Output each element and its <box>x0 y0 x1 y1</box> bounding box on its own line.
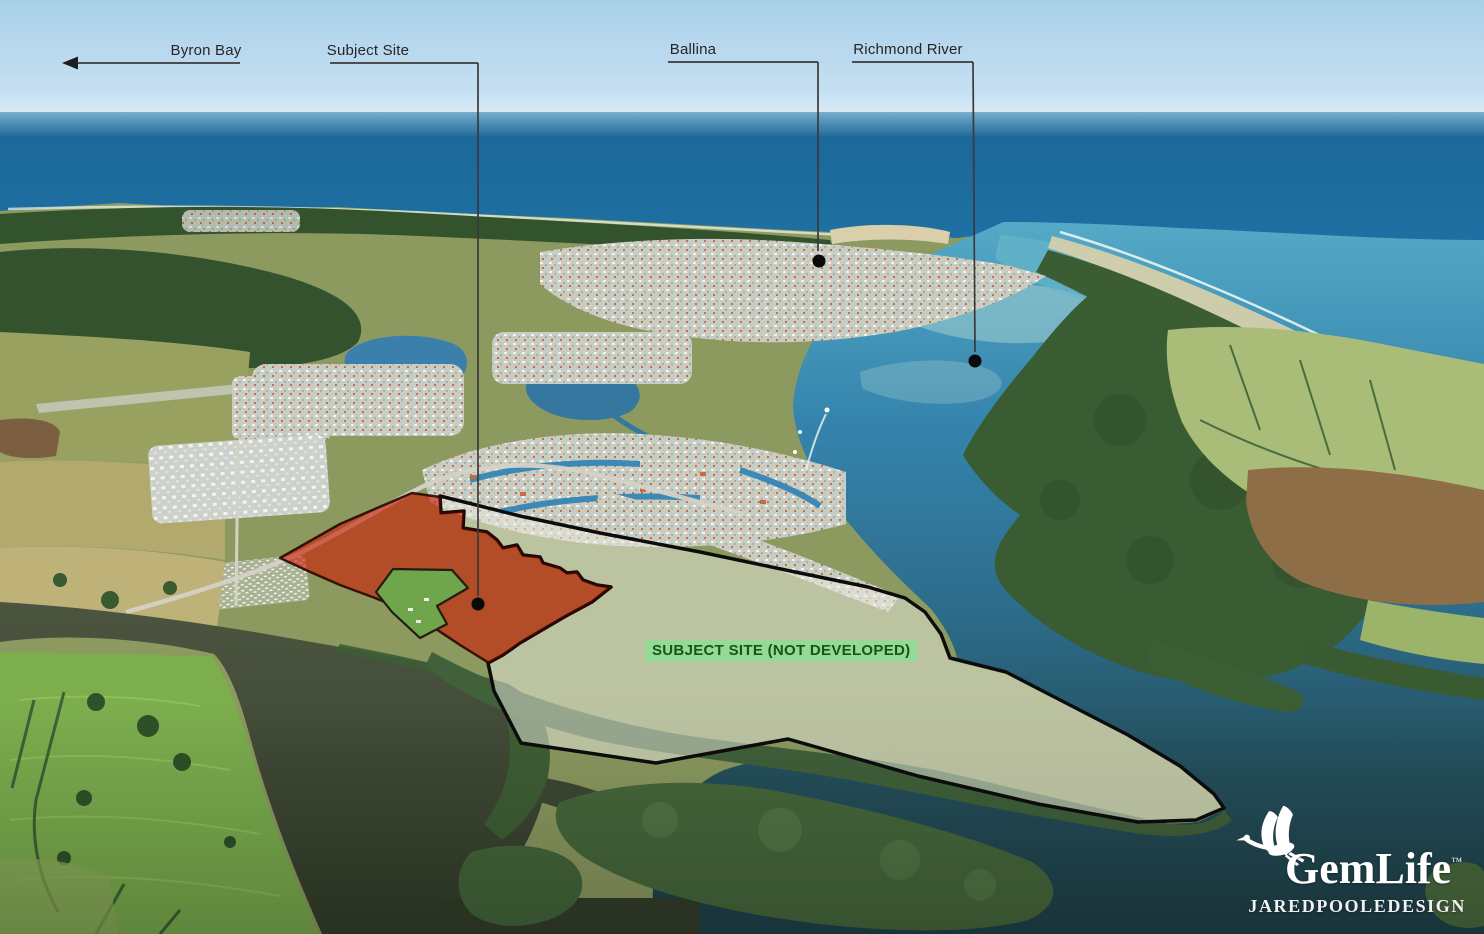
label-richmond-river: Richmond River <box>828 41 988 58</box>
studio-name: JAREDPOOLEDESIGN <box>1248 896 1466 917</box>
brand-name: GemLife™ <box>1285 840 1462 891</box>
label-byron-bay: Byron Bay <box>126 42 286 59</box>
brand-text: GemLife <box>1285 844 1451 893</box>
trademark-symbol: ™ <box>1451 856 1462 868</box>
site-status-tag: SUBJECT SITE (NOT DEVELOPED) <box>645 640 917 662</box>
leader-line-ballina <box>668 62 818 251</box>
label-ballina: Ballina <box>613 41 773 58</box>
west-arrow-icon <box>62 57 78 70</box>
label-subject-site: Subject Site <box>288 42 448 59</box>
aerial-site-map: Byron Bay Subject Site Ballina Richmond … <box>0 0 1484 934</box>
location-dot-ballina <box>813 255 826 268</box>
location-dot-subject-site <box>472 598 485 611</box>
gemlife-logo: GemLife™ JAREDPOOLEDESIGN <box>1230 804 1474 930</box>
location-dot-richmond-river <box>969 355 982 368</box>
leader-line-richmond-river <box>852 62 975 352</box>
annotation-overlay <box>0 0 1484 934</box>
